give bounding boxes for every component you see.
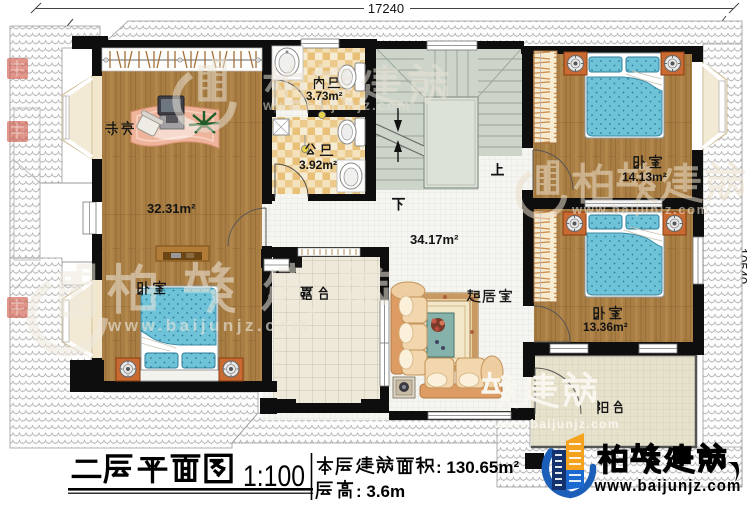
svg-text:3.73m²: 3.73m²: [306, 91, 343, 103]
svg-text:3.92m²: 3.92m²: [299, 158, 337, 172]
svg-text:13.36m²: 13.36m²: [583, 320, 628, 334]
svg-text:34.17m²: 34.17m²: [410, 232, 459, 247]
svg-text:: 3.6m: : 3.6m: [356, 482, 405, 501]
svg-text:: 130.65m²: : 130.65m²: [436, 458, 519, 477]
svg-text:www.baijunjz.com: www.baijunjz.com: [493, 417, 620, 431]
svg-text:www.baijunjz.com: www.baijunjz.com: [571, 202, 710, 217]
svg-text:www.baijunjz.com: www.baijunjz.com: [107, 316, 311, 335]
svg-text:32.31m²: 32.31m²: [147, 201, 196, 216]
svg-text:www.baijunjz.com: www.baijunjz.com: [594, 477, 742, 495]
svg-text:14.13m²: 14.13m²: [622, 170, 667, 184]
svg-text:17240: 17240: [368, 1, 404, 16]
